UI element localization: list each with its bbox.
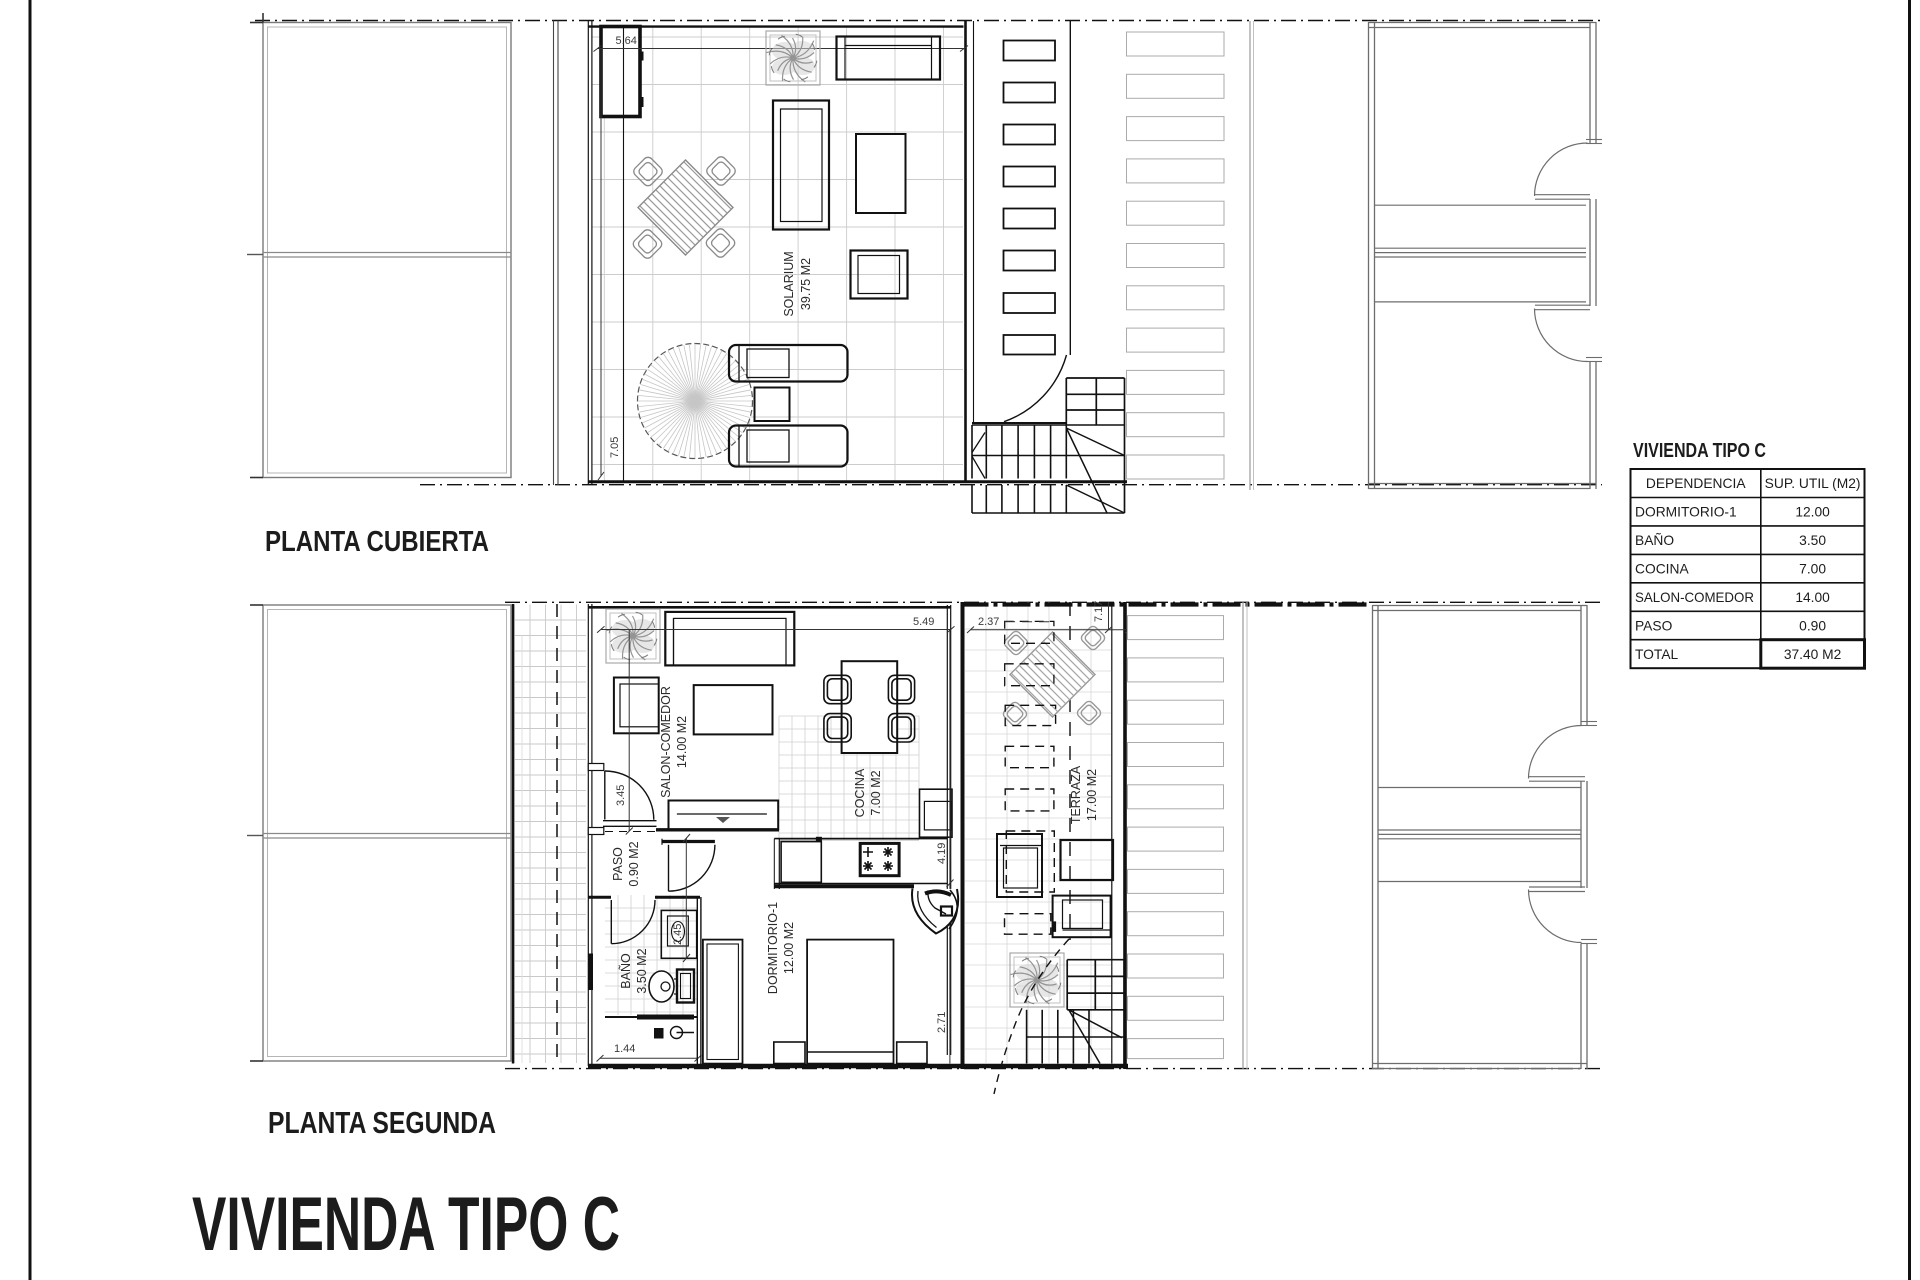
- svg-text:17.00 M2: 17.00 M2: [1085, 769, 1099, 821]
- svg-text:TOTAL: TOTAL: [1635, 647, 1679, 662]
- svg-text:VIVIENDA TIPO C: VIVIENDA TIPO C: [1633, 440, 1766, 462]
- svg-text:DORMITORIO-1: DORMITORIO-1: [766, 902, 780, 994]
- svg-text:12.00: 12.00: [1795, 505, 1830, 520]
- svg-text:3.50: 3.50: [1799, 533, 1826, 548]
- svg-text:BAÑO: BAÑO: [1635, 532, 1674, 548]
- svg-text:2.37: 2.37: [978, 616, 999, 628]
- svg-text:3.50 M2: 3.50 M2: [635, 948, 649, 993]
- svg-text:5.49: 5.49: [913, 616, 934, 628]
- svg-text:39.75 M2: 39.75 M2: [799, 258, 813, 310]
- svg-text:DEPENDENCIA: DEPENDENCIA: [1646, 476, 1746, 491]
- svg-text:COCINA: COCINA: [853, 768, 867, 817]
- svg-text:4.19: 4.19: [936, 843, 948, 864]
- svg-text:1.44: 1.44: [614, 1043, 635, 1055]
- svg-text:7.00 M2: 7.00 M2: [869, 770, 883, 815]
- svg-text:2.71: 2.71: [936, 1012, 948, 1033]
- svg-text:SALON-COMEDOR: SALON-COMEDOR: [1635, 590, 1754, 605]
- svg-text:PLANTA SEGUNDA: PLANTA SEGUNDA: [268, 1105, 496, 1140]
- svg-text:12.00 M2: 12.00 M2: [782, 922, 796, 974]
- svg-text:7.17: 7.17: [1093, 601, 1105, 622]
- svg-text:SUP. UTIL (M2): SUP. UTIL (M2): [1765, 476, 1861, 491]
- svg-text:14.00: 14.00: [1795, 590, 1830, 605]
- svg-text:PLANTA CUBIERTA: PLANTA CUBIERTA: [265, 526, 489, 558]
- svg-text:7.05: 7.05: [609, 437, 621, 458]
- svg-text:TERRAZA: TERRAZA: [1069, 765, 1083, 824]
- svg-text:COCINA: COCINA: [1635, 562, 1689, 577]
- svg-text:14.00 M2: 14.00 M2: [675, 716, 689, 768]
- svg-text:VIVIENDA TIPO C: VIVIENDA TIPO C: [192, 1182, 620, 1267]
- svg-text:SOLARIUM: SOLARIUM: [782, 251, 796, 316]
- svg-text:0.90: 0.90: [1799, 619, 1826, 634]
- svg-text:PASO: PASO: [1635, 619, 1673, 634]
- svg-text:37.40 M2: 37.40 M2: [1784, 647, 1842, 662]
- svg-text:PASO: PASO: [611, 847, 625, 881]
- svg-text:SALON-COMEDOR: SALON-COMEDOR: [659, 686, 673, 798]
- svg-text:DORMITORIO-1: DORMITORIO-1: [1635, 505, 1737, 520]
- svg-text:2.45: 2.45: [672, 924, 684, 945]
- svg-text:3.45: 3.45: [615, 785, 627, 806]
- svg-text:0.90 M2: 0.90 M2: [627, 841, 641, 886]
- svg-text:BAÑO: BAÑO: [619, 953, 633, 989]
- svg-text:7.00: 7.00: [1799, 562, 1826, 577]
- svg-text:5.64: 5.64: [616, 35, 637, 47]
